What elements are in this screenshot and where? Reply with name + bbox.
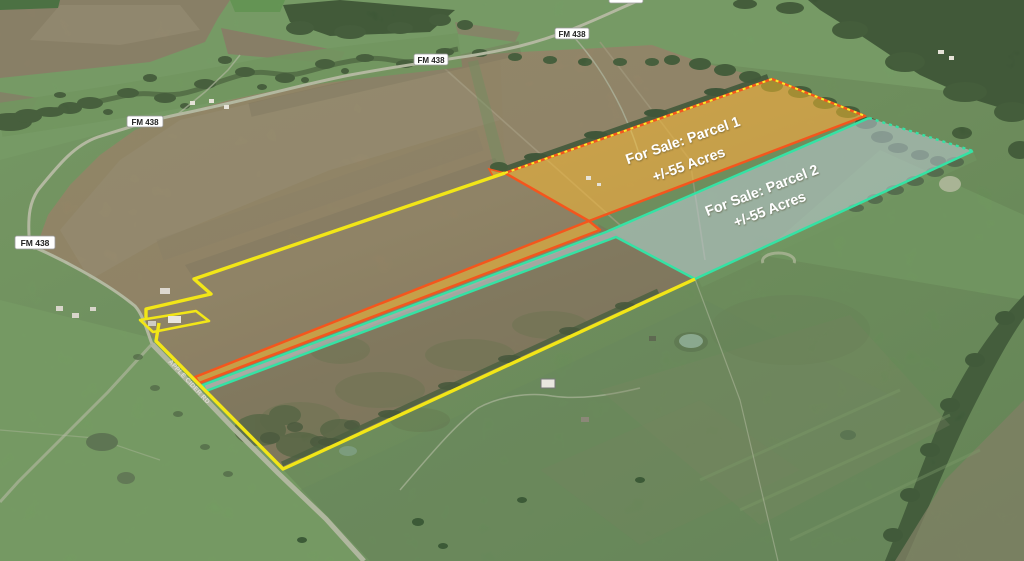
svg-text:FM 438: FM 438: [558, 30, 586, 39]
svg-text:FM 438: FM 438: [417, 56, 445, 65]
svg-text:FM 438: FM 438: [21, 238, 50, 248]
svg-text:FM 438: FM 438: [131, 118, 159, 127]
